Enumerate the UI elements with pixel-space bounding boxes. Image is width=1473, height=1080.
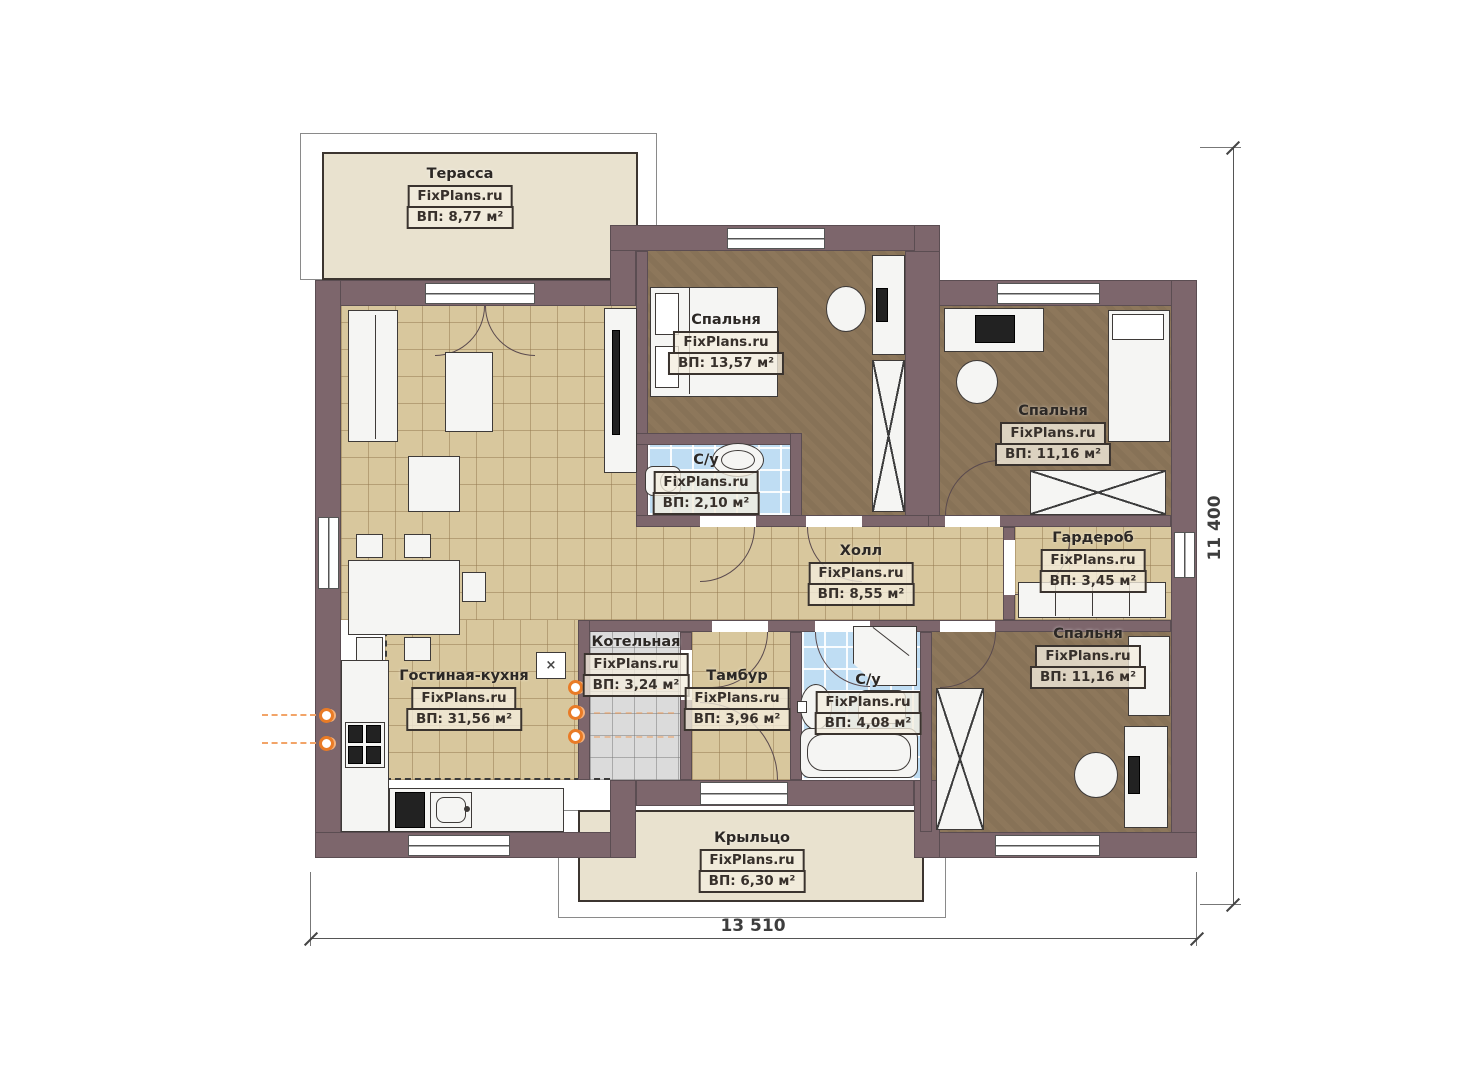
watermark: FixPlans.ru xyxy=(1035,645,1140,668)
wall xyxy=(790,433,802,527)
gas-line xyxy=(594,736,674,738)
radiator-symbol xyxy=(568,705,583,720)
dining-table xyxy=(348,560,460,635)
room-name: Терасса xyxy=(427,166,494,182)
dimension-tick xyxy=(1190,932,1204,946)
stove-burner xyxy=(348,725,363,743)
laptop xyxy=(876,288,888,322)
radiator-symbol xyxy=(568,729,583,744)
room-name: Гардероб xyxy=(1052,530,1133,546)
room-label-living-kitchen: Гостиная-кухня FixPlans.ru ВП: 31,56 м² xyxy=(399,668,528,731)
room-label-bathroom-small: С/у FixPlans.ru ВП: 2,10 м² xyxy=(653,452,760,515)
watermark: FixPlans.ru xyxy=(1000,422,1105,445)
door-opening xyxy=(806,516,862,527)
computer xyxy=(1128,756,1140,794)
hatch-symbol-glyph: × xyxy=(546,658,557,673)
window xyxy=(408,835,510,856)
watermark: FixPlans.ru xyxy=(583,653,688,676)
room-name: Спальня xyxy=(1018,403,1088,419)
chair xyxy=(462,572,486,602)
watermark: FixPlans.ru xyxy=(411,687,516,710)
coffee-table xyxy=(445,352,493,432)
gas-line xyxy=(594,712,674,714)
room-name: Спальня xyxy=(691,312,761,328)
room-name: С/у xyxy=(855,672,880,688)
dimension-height-label: 11 400 xyxy=(1205,468,1225,588)
hatch-symbol: × xyxy=(536,652,566,679)
radiator-symbol xyxy=(319,736,334,751)
room-label-bathroom-big: С/у FixPlans.ru ВП: 4,08 м² xyxy=(815,672,922,735)
watermark: FixPlans.ru xyxy=(1040,549,1145,572)
room-area: ВП: 8,77 м² xyxy=(407,206,514,229)
sofa xyxy=(348,310,398,442)
door-opening xyxy=(700,516,756,527)
chair xyxy=(356,637,383,661)
terrace-door xyxy=(425,283,535,304)
chair xyxy=(404,534,431,558)
entrance-door-opening xyxy=(700,782,788,805)
chair xyxy=(356,534,383,558)
kitchen-sink xyxy=(430,792,472,828)
radiator-symbol xyxy=(319,708,334,723)
tv-stand xyxy=(604,308,637,473)
extension-line xyxy=(310,872,311,946)
gas-line xyxy=(262,742,316,744)
room-area: ВП: 6,30 м² xyxy=(699,870,806,893)
floor-plan: × xyxy=(0,0,1473,1080)
room-area: ВП: 2,10 м² xyxy=(653,492,760,515)
room-name: Котельная xyxy=(592,634,681,650)
room-area: ВП: 11,16 м² xyxy=(995,443,1111,466)
room-label-bedroom-top-right: Спальня FixPlans.ru ВП: 11,16 м² xyxy=(995,403,1111,466)
window xyxy=(318,517,339,589)
dimension-tick xyxy=(304,932,318,946)
tv xyxy=(612,330,620,435)
room-label-bedroom-top: Спальня FixPlans.ru ВП: 13,57 м² xyxy=(668,312,784,375)
bathtub xyxy=(800,728,918,778)
window xyxy=(997,283,1100,304)
wall xyxy=(610,780,636,858)
wardrobe xyxy=(1030,470,1166,515)
watermark: FixPlans.ru xyxy=(653,471,758,494)
door-opening xyxy=(940,621,995,632)
room-name: Гостиная-кухня xyxy=(399,668,528,684)
gas-line xyxy=(262,714,316,716)
stove-burner xyxy=(366,746,381,764)
room-name: Спальня xyxy=(1053,626,1123,642)
window xyxy=(1174,532,1195,578)
room-label-terrace: Терасса FixPlans.ru ВП: 8,77 м² xyxy=(407,166,514,229)
watermark: FixPlans.ru xyxy=(699,849,804,872)
room-area: ВП: 31,56 м² xyxy=(406,708,522,731)
room-area: ВП: 8,55 м² xyxy=(808,583,915,606)
window xyxy=(727,228,825,249)
room-label-wardrobe-room: Гардероб FixPlans.ru ВП: 3,45 м² xyxy=(1040,530,1147,593)
kitchen-zone-boundary xyxy=(385,778,610,780)
room-label-hall: Холл FixPlans.ru ВП: 8,55 м² xyxy=(808,543,915,606)
room-name: С/у xyxy=(693,452,718,468)
radiator-symbol xyxy=(568,680,583,695)
office-chair xyxy=(956,360,998,404)
room-area: ВП: 3,96 м² xyxy=(684,708,791,731)
room-label-porch: Крыльцо FixPlans.ru ВП: 6,30 м² xyxy=(699,830,806,893)
chair xyxy=(404,637,431,661)
door-opening xyxy=(712,621,768,632)
door-opening xyxy=(945,516,1000,527)
watermark: FixPlans.ru xyxy=(673,331,778,354)
dimension-width-label: 13 510 xyxy=(693,916,813,936)
room-name: Тамбур xyxy=(706,668,767,684)
watermark: FixPlans.ru xyxy=(407,185,512,208)
room-area: ВП: 13,57 м² xyxy=(668,352,784,375)
room-name: Холл xyxy=(840,543,882,559)
wall xyxy=(920,632,932,832)
room-name: Крыльцо xyxy=(714,830,790,846)
room-area: ВП: 4,08 м² xyxy=(815,712,922,735)
door-opening xyxy=(1004,540,1015,595)
wall xyxy=(636,515,940,527)
room-label-boiler-room: Котельная FixPlans.ru ВП: 3,24 м² xyxy=(583,634,690,697)
dishwasher xyxy=(395,792,425,828)
wardrobe xyxy=(936,688,984,830)
office-chair xyxy=(826,286,866,332)
stove-burner xyxy=(366,725,381,743)
room-area: ВП: 3,45 м² xyxy=(1040,570,1147,593)
armchair xyxy=(408,456,460,512)
watermark: FixPlans.ru xyxy=(684,687,789,710)
wall xyxy=(636,433,802,445)
stove-burner xyxy=(348,746,363,764)
wardrobe xyxy=(872,360,905,512)
room-area: ВП: 3,24 м² xyxy=(583,674,690,697)
wall xyxy=(905,251,940,527)
room-label-bedroom-bottom-right: Спальня FixPlans.ru ВП: 11,16 м² xyxy=(1030,626,1146,689)
watermark: FixPlans.ru xyxy=(815,691,920,714)
extension-line xyxy=(1196,872,1197,946)
room-area: ВП: 11,16 м² xyxy=(1030,666,1146,689)
watermark: FixPlans.ru xyxy=(808,562,913,585)
window xyxy=(995,835,1100,856)
dimension-line-bottom xyxy=(310,938,1197,939)
printer xyxy=(975,315,1015,343)
room-label-vestibule: Тамбур FixPlans.ru ВП: 3,96 м² xyxy=(684,668,791,731)
bed xyxy=(1108,310,1170,442)
office-chair xyxy=(1074,752,1118,798)
dimension-line-right xyxy=(1233,148,1234,905)
